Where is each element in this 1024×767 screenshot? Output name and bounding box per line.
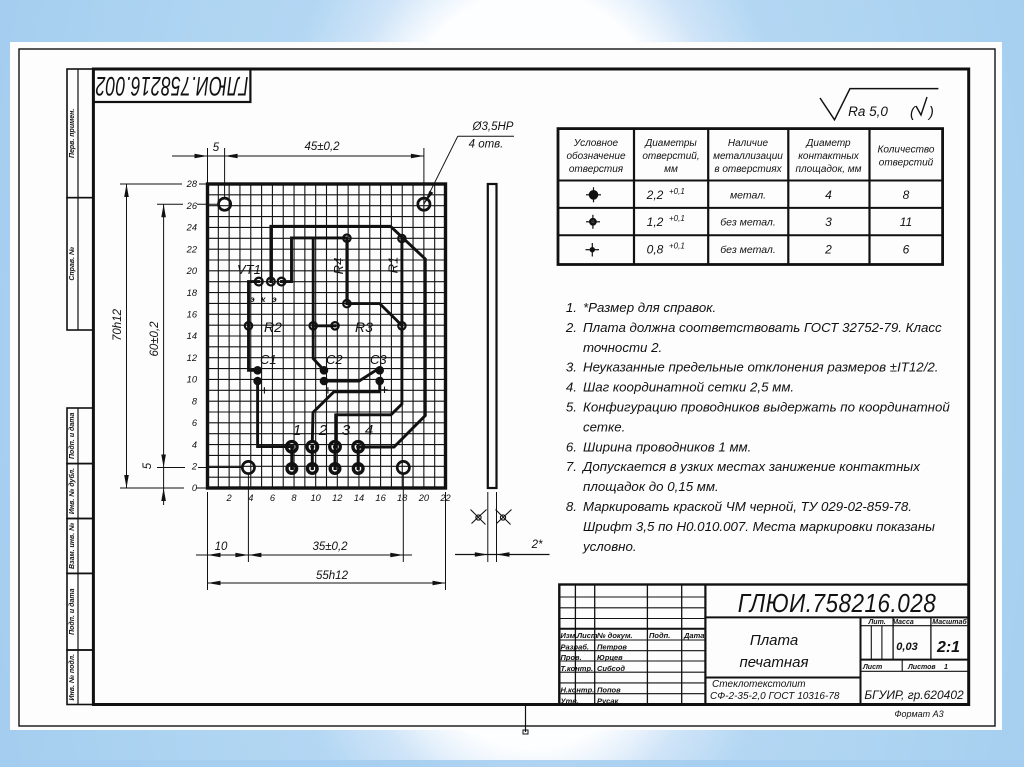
svg-text:26: 26 [186, 201, 198, 211]
svg-text:э: э [272, 294, 277, 304]
svg-text:45±0,2: 45±0,2 [304, 141, 340, 153]
svg-text:20: 20 [186, 266, 198, 276]
svg-text:Масштаб: Масштаб [932, 618, 967, 626]
svg-text:1: 1 [944, 664, 948, 671]
svg-text:0,03: 0,03 [896, 641, 917, 653]
svg-text:+0,1: +0,1 [669, 214, 685, 223]
svg-text:Попов: Попов [597, 686, 621, 695]
svg-text:4.: 4. [566, 380, 577, 395]
svg-text:2: 2 [191, 462, 198, 472]
svg-text:R4: R4 [331, 258, 346, 275]
svg-text:2.: 2. [565, 320, 577, 335]
svg-text:площадок, мм: площадок, мм [796, 164, 862, 175]
svg-text:0,8: 0,8 [647, 243, 664, 257]
svg-text:11: 11 [900, 215, 912, 229]
svg-text:Неуказанные предельные отклоне: Неуказанные предельные отклонения размер… [583, 360, 938, 375]
svg-text:Инв. № подл.: Инв. № подл. [68, 654, 76, 701]
svg-text:обозначение: обозначение [566, 150, 625, 162]
svg-text:Листов: Листов [907, 664, 936, 671]
svg-text:5: 5 [213, 142, 220, 154]
svg-text:C3: C3 [370, 352, 387, 367]
svg-text:12: 12 [332, 493, 343, 503]
svg-text:4: 4 [825, 188, 832, 202]
svg-text:Ø3,5НР: Ø3,5НР [472, 121, 514, 133]
svg-text:Юрцев: Юрцев [597, 653, 623, 662]
svg-text:без метал.: без метал. [720, 217, 776, 229]
svg-text:70h12: 70h12 [112, 308, 124, 341]
svg-text:8: 8 [192, 396, 198, 406]
svg-text:2:1: 2:1 [936, 639, 960, 656]
svg-text:Конфигурацию проводников выдер: Конфигурацию проводников выдержать по ко… [583, 400, 950, 415]
svg-text:+0,1: +0,1 [669, 187, 685, 196]
svg-text:Маркировать краской ЧМ черной,: Маркировать краской ЧМ черной, ТУ 029-02… [583, 499, 912, 514]
svg-text:18: 18 [187, 288, 198, 298]
svg-text:Шаг координатной сетки 2,5 мм.: Шаг координатной сетки 2,5 мм. [583, 380, 794, 395]
svg-text:Изм.: Изм. [561, 631, 578, 640]
svg-text:8: 8 [903, 188, 910, 202]
svg-text:60±0,2: 60±0,2 [149, 321, 161, 357]
svg-text:2: 2 [318, 422, 328, 439]
svg-text:5: 5 [142, 462, 154, 469]
svg-text:1.: 1. [566, 300, 577, 315]
svg-text:к: к [261, 294, 266, 304]
svg-text:контактных: контактных [798, 151, 860, 162]
svg-text:Сибсод: Сибсод [597, 664, 625, 673]
svg-text:Плата должна соответствовать Г: Плата должна соответствовать ГОСТ 32752-… [583, 320, 942, 335]
svg-text:R3: R3 [355, 319, 373, 335]
svg-text:мм: мм [664, 164, 678, 175]
svg-text:8: 8 [291, 493, 297, 503]
svg-text:Пров.: Пров. [561, 653, 582, 662]
svg-text:Подп. и дата: Подп. и дата [68, 588, 76, 634]
svg-text:БГУИР, гр.620402: БГУИР, гр.620402 [864, 688, 964, 702]
svg-text:Взам. инв. №: Взам. инв. № [69, 523, 76, 569]
svg-text:Утв.: Утв. [561, 697, 579, 706]
svg-text:СФ-2-35-2,0 ГОСТ 10316-78: СФ-2-35-2,0 ГОСТ 10316-78 [710, 691, 840, 702]
svg-text:площадок до 0,15 мм.: площадок до 0,15 мм. [583, 479, 719, 494]
svg-text:условно.: условно. [582, 539, 637, 554]
svg-text:2*: 2* [531, 539, 543, 551]
svg-text:Плата: Плата [750, 632, 798, 649]
svg-text:Петров: Петров [597, 643, 627, 652]
svg-text:э: э [250, 294, 255, 304]
svg-text:20: 20 [418, 493, 430, 503]
svg-text:2: 2 [824, 243, 832, 257]
svg-text:C1: C1 [260, 352, 277, 367]
svg-text:1,2: 1,2 [647, 215, 664, 229]
svg-text:10: 10 [187, 375, 198, 385]
svg-text:C2: C2 [326, 352, 343, 367]
svg-text:6: 6 [192, 418, 198, 428]
svg-text:8.: 8. [566, 499, 577, 514]
svg-text:7.: 7. [566, 459, 577, 474]
svg-text:Формат А3: Формат А3 [894, 709, 943, 719]
svg-text:28: 28 [186, 179, 198, 189]
svg-text:VT1: VT1 [237, 262, 261, 277]
svg-text:6.: 6. [566, 439, 577, 454]
svg-text:Стеклотекстолит: Стеклотекстолит [712, 679, 806, 690]
svg-text:+0,1: +0,1 [669, 242, 685, 251]
svg-text:Справ. №: Справ. № [69, 247, 76, 281]
svg-text:в отверстиях: в отверстиях [714, 164, 782, 175]
svg-text:ГЛЮИ.758216.002: ГЛЮИ.758216.002 [95, 71, 248, 102]
svg-text:Диаметр: Диаметр [805, 138, 851, 149]
svg-text:сетке.: сетке. [583, 419, 625, 434]
svg-text:12: 12 [187, 353, 198, 363]
svg-text:отверстия: отверстия [569, 164, 624, 175]
svg-text:14: 14 [187, 331, 197, 341]
svg-text:Ширина проводников 1 мм.: Ширина проводников 1 мм. [583, 439, 751, 454]
svg-text:5.: 5. [566, 400, 577, 415]
svg-text:16: 16 [187, 310, 198, 320]
svg-text:4: 4 [248, 493, 253, 503]
svg-text:Инв. № дубл.: Инв. № дубл. [68, 468, 76, 514]
svg-text:Русак: Русак [597, 697, 620, 706]
svg-text:Диаметры: Диаметры [644, 138, 697, 149]
svg-text:4: 4 [192, 440, 197, 450]
svg-text:35±0,2: 35±0,2 [312, 541, 348, 553]
svg-text:Количество: Количество [878, 145, 935, 156]
svg-text:ГЛЮИ.758216.028: ГЛЮИ.758216.028 [738, 590, 937, 619]
svg-text:метал.: метал. [730, 190, 766, 202]
svg-text:Н.контр.: Н.контр. [561, 686, 595, 695]
svg-text:Шрифт 3,5 по Н0.010.007. Места: Шрифт 3,5 по Н0.010.007. Места маркировк… [583, 519, 935, 534]
svg-text:Допускается в узких местах зан: Допускается в узких местах занижение кон… [581, 459, 921, 474]
svg-text:10: 10 [311, 493, 322, 503]
svg-text:6: 6 [903, 243, 910, 257]
svg-text:R1: R1 [386, 257, 401, 274]
svg-text:10: 10 [215, 541, 228, 553]
svg-text:Т.контр.: Т.контр. [561, 664, 594, 673]
svg-text:1: 1 [293, 422, 301, 439]
svg-text:22: 22 [186, 244, 198, 254]
svg-text:Лист: Лист [576, 631, 598, 640]
svg-text:R2: R2 [264, 319, 282, 335]
svg-text:24: 24 [186, 223, 197, 233]
svg-text:6: 6 [270, 493, 276, 503]
svg-text:14: 14 [354, 493, 364, 503]
svg-text:Наличие: Наличие [728, 138, 769, 149]
svg-text:Лит.: Лит. [868, 619, 886, 626]
svg-text:Разраб.: Разраб. [561, 643, 589, 652]
svg-text:*Размер для справок.: *Размер для справок. [583, 300, 716, 315]
svg-text:Подп. и дата: Подп. и дата [68, 413, 76, 459]
svg-text:55h12: 55h12 [316, 570, 349, 582]
svg-text:Перв. примен.: Перв. примен. [69, 109, 76, 158]
svg-text:№ докум.: № докум. [597, 631, 633, 640]
svg-text:3: 3 [825, 215, 832, 229]
svg-text:): ) [927, 105, 934, 121]
svg-text:отверстий,: отверстий, [642, 151, 699, 162]
svg-text:16: 16 [375, 493, 386, 503]
svg-text:Лист: Лист [862, 664, 882, 671]
svg-text:2,2: 2,2 [646, 188, 664, 202]
svg-text:Подп.: Подп. [649, 631, 670, 640]
svg-text:Условное: Условное [573, 138, 619, 149]
svg-text:3: 3 [342, 422, 351, 439]
svg-text:4: 4 [365, 422, 373, 439]
svg-text:Дата: Дата [683, 631, 704, 640]
svg-text:Масса: Масса [892, 619, 914, 626]
svg-text:18: 18 [397, 493, 408, 503]
svg-text:точности 2.: точности 2. [583, 340, 662, 355]
svg-text:3.: 3. [566, 360, 577, 375]
svg-text:2: 2 [226, 493, 233, 503]
svg-text:отверстий: отверстий [879, 158, 934, 169]
svg-text:Ra 5,0: Ra 5,0 [848, 104, 888, 119]
svg-text:печатная: печатная [740, 654, 809, 671]
svg-text:без метал.: без метал. [720, 244, 776, 256]
svg-text:металлизации: металлизации [713, 151, 783, 162]
svg-text:4 отв.: 4 отв. [469, 139, 504, 151]
